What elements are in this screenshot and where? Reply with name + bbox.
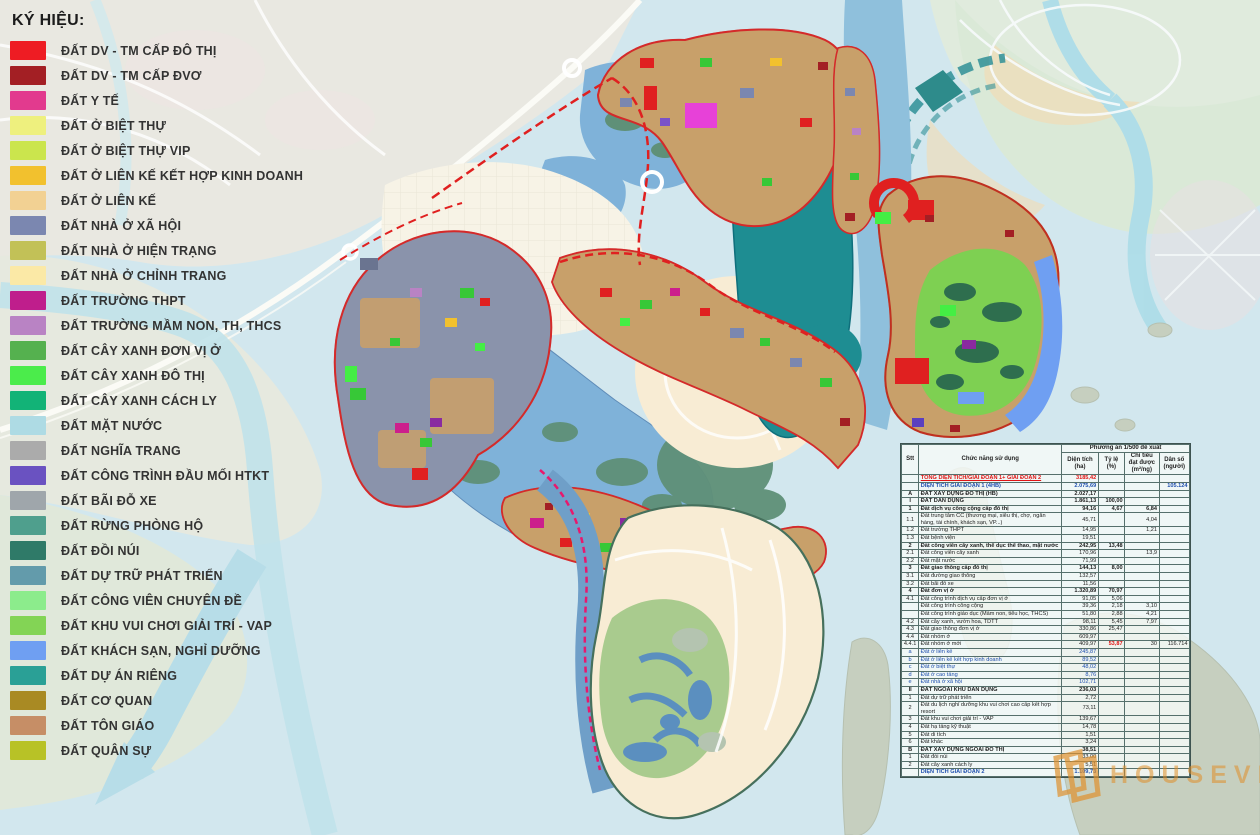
land-use-table: Stt Chức năng sử dụng Phương án 1/500 đề…: [900, 443, 1191, 778]
legend-item: ĐẤT NHÀ Ở CHỈNH TRANG: [10, 263, 303, 288]
table-cell: 91,05: [1062, 595, 1099, 603]
table-cell: 2: [902, 702, 919, 716]
table-row: 1.1Đất trung tâm CC (thương mại, siêu th…: [902, 513, 1190, 527]
table-cell: [1098, 573, 1124, 581]
table-cell: [1125, 702, 1159, 716]
table-cell: Đất bệnh viện: [919, 535, 1062, 543]
table-cell: Đất dịch vụ công cộng cấp đô thị: [919, 505, 1062, 513]
table-cell: [1159, 550, 1189, 558]
legend-item: ĐẤT NHÀ Ở XÃ HỘI: [10, 213, 303, 238]
legend-item: ĐẤT MẶT NƯỚC: [10, 413, 303, 438]
table-cell: 2: [902, 761, 919, 769]
table-cell: [1159, 754, 1189, 762]
table-cell: b: [902, 656, 919, 664]
legend-swatch: [10, 441, 46, 460]
legend-item-label: ĐẤT BÃI ĐỖ XE: [61, 494, 157, 508]
table-cell: [1159, 580, 1189, 588]
table-row: 2.1Đất công viên cây xanh170,9613,9: [902, 550, 1190, 558]
table-cell: [1159, 702, 1189, 716]
legend-item: ĐẤT NHÀ Ở HIỆN TRẠNG: [10, 238, 303, 263]
table-cell: [1159, 611, 1189, 619]
table-cell: [1159, 565, 1189, 573]
table-cell: 170,96: [1062, 550, 1099, 558]
table-cell: [1159, 746, 1189, 754]
table-cell: [1159, 490, 1189, 498]
legend-swatch: [10, 316, 46, 335]
table-cell: [1098, 527, 1124, 535]
table-cell: [1159, 618, 1189, 626]
legend-swatch: [10, 41, 46, 60]
table-cell: 242,95: [1062, 542, 1099, 550]
legend-item: ĐẤT TRƯỜNG THPT: [10, 288, 303, 313]
table-cell: Đất hạ tầng kỹ thuật: [919, 723, 1062, 731]
table-cell: [1125, 694, 1159, 702]
table-cell: Đất giao thông đơn vị ở: [919, 626, 1062, 634]
table-cell: [1159, 513, 1189, 527]
legend-item: ĐẤT Ở BIỆT THỰ: [10, 113, 303, 138]
table-cell: [1159, 595, 1189, 603]
table-row: 1Đất dự trữ phát triển2,72: [902, 694, 1190, 702]
legend-item-label: ĐẤT DỰ ÁN RIÊNG: [61, 669, 177, 683]
legend-item: ĐẤT DỰ ÁN RIÊNG: [10, 663, 303, 688]
table-row: 2Đất du lịch nghỉ dưỡng khu vui chơi cao…: [902, 702, 1190, 716]
table-cell: [1098, 664, 1124, 672]
table-cell: [1098, 580, 1124, 588]
legend-item: ĐẤT Y TẾ: [10, 88, 303, 113]
legend-item: ĐẤT DV - TM CẤP ĐÔ THỊ: [10, 38, 303, 63]
table-cell: 3.1: [902, 573, 919, 581]
table-row: 6Đất khác3,24: [902, 739, 1190, 747]
table-cell: [1098, 482, 1124, 490]
table-row: 2Đất công viên cây xanh, thể dục thể tha…: [902, 542, 1190, 550]
legend-item-label: ĐẤT CÔNG VIÊN CHUYÊN ĐỀ: [61, 594, 242, 608]
table-cell: [1159, 761, 1189, 769]
legend-item: ĐẤT KHÁCH SẠN, NGHỈ DƯỠNG: [10, 638, 303, 663]
table-cell: 4.1: [902, 595, 919, 603]
table-cell: 4.2: [902, 618, 919, 626]
legend-swatch: [10, 66, 46, 85]
table-cell: Đất đồi núi: [919, 754, 1062, 762]
table-cell: [1125, 656, 1159, 664]
table-cell: ĐẤT NGOÀI KHU DÂN DỤNG: [919, 686, 1062, 694]
table-cell: 1.3: [902, 535, 919, 543]
table-cell: [1125, 565, 1159, 573]
table-row: 3Đất giao thông cấp đô thị144,138,00: [902, 565, 1190, 573]
table-cell: [1125, 664, 1159, 672]
legend-item-label: ĐẤT NHÀ Ở XÃ HỘI: [61, 219, 181, 233]
table-cell: [1098, 679, 1124, 687]
table-cell: [1125, 761, 1159, 769]
table-cell: Đất công trình dịch vụ cấp đơn vị ở: [919, 595, 1062, 603]
table-cell: Đất công viên cây xanh: [919, 550, 1062, 558]
legend-swatch: [10, 266, 46, 285]
table-row: bĐất ở liên kế kết hợp kinh doanh89,52: [902, 656, 1190, 664]
table-cell: 2,88: [1098, 611, 1124, 619]
table-cell: [1159, 498, 1189, 506]
table-cell: [1098, 754, 1124, 762]
legend-item-label: ĐẤT CÂY XANH CÁCH LY: [61, 394, 217, 408]
legend-item: ĐẤT TÔN GIÁO: [10, 713, 303, 738]
table-cell: [1098, 490, 1124, 498]
col-header-pop: Dân số (người): [1159, 453, 1189, 475]
table-cell: [902, 482, 919, 490]
legend-item: ĐẤT CƠ QUAN: [10, 688, 303, 713]
legend-item-label: ĐẤT CÂY XANH ĐÔ THỊ: [61, 369, 205, 383]
table-cell: [1098, 656, 1124, 664]
table-cell: 5: [902, 731, 919, 739]
legend-item: ĐẤT RỪNG PHÒNG HỘ: [10, 513, 303, 538]
table-cell: Đất cây xanh cách ly: [919, 761, 1062, 769]
table-cell: [1098, 723, 1124, 731]
planning-map-screen: KÝ HIỆU: ĐẤT DV - TM CẤP ĐÔ THỊĐẤT DV - …: [0, 0, 1260, 835]
legend-swatch: [10, 416, 46, 435]
table-cell: [1159, 603, 1189, 611]
legend-swatch: [10, 166, 46, 185]
table-cell: 4,67: [1098, 505, 1124, 513]
table-cell: [1125, 648, 1159, 656]
table-cell: d: [902, 671, 919, 679]
table-cell: [1098, 694, 1124, 702]
table-cell: 245,87: [1062, 648, 1099, 656]
table-cell: 132,57: [1062, 573, 1099, 581]
table-row: 3Đất khu vui chơi giải trí - VAP139,67: [902, 716, 1190, 724]
legend-swatch: [10, 241, 46, 260]
legend-item-label: ĐẤT TRƯỜNG THPT: [61, 294, 186, 308]
table-cell: Đất trung tâm CC (thương mại, siêu thị, …: [919, 513, 1062, 527]
legend-item: ĐẤT TRƯỜNG MẦM NON, TH, THCS: [10, 313, 303, 338]
table-cell: DIỆN TÍCH GIAI ĐOẠN 2: [919, 769, 1062, 777]
table-cell: [1125, 482, 1159, 490]
table-cell: [1098, 739, 1124, 747]
table-cell: [1159, 626, 1189, 634]
table-cell: [1125, 716, 1159, 724]
table-cell: [1159, 535, 1189, 543]
table-cell: [1159, 648, 1189, 656]
table-cell: 139,67: [1062, 716, 1099, 724]
table-row: 4Đất hạ tầng kỹ thuật14,78: [902, 723, 1190, 731]
table-cell: 2,72: [1062, 694, 1099, 702]
table-cell: Đất bãi đỗ xe: [919, 580, 1062, 588]
table-cell: [1125, 679, 1159, 687]
legend-item-label: ĐẤT KHÁCH SẠN, NGHỈ DƯỠNG: [61, 644, 261, 658]
table-cell: 3185,42: [1062, 475, 1099, 483]
table-cell: 39,36: [1062, 603, 1099, 611]
legend: KÝ HIỆU: ĐẤT DV - TM CẤP ĐÔ THỊĐẤT DV - …: [10, 12, 303, 763]
table-row: IIĐẤT NGOÀI KHU DÂN DỤNG236,03: [902, 686, 1190, 694]
table-cell: 98,11: [1062, 618, 1099, 626]
table-cell: Đất ở liên kế kết hợp kinh doanh: [919, 656, 1062, 664]
table-row: 1.2Đất trường THPT14,951,21: [902, 527, 1190, 535]
legend-list: ĐẤT DV - TM CẤP ĐÔ THỊĐẤT DV - TM CẤP ĐV…: [10, 38, 303, 763]
table-cell: 409,97: [1062, 641, 1099, 649]
table-cell: ĐẤT XÂY DỰNG ĐÔ THỊ (HB): [919, 490, 1062, 498]
table-cell: 4.4: [902, 633, 919, 641]
table-cell: [1159, 716, 1189, 724]
table-cell: 1,21: [1125, 527, 1159, 535]
table-cell: [1125, 535, 1159, 543]
table-cell: Đất dự trữ phát triển: [919, 694, 1062, 702]
table-cell: [1098, 702, 1124, 716]
table-cell: 105.124: [1159, 482, 1189, 490]
legend-item-label: ĐẤT CÂY XANH ĐƠN VỊ Ở: [61, 344, 221, 358]
table-cell: [1159, 679, 1189, 687]
table-cell: [1098, 746, 1124, 754]
legend-item-label: ĐẤT Ở BIỆT THỰ: [61, 119, 166, 133]
table-cell: Đất khu vui chơi giải trí - VAP: [919, 716, 1062, 724]
legend-swatch: [10, 641, 46, 660]
table-cell: 236,03: [1062, 686, 1099, 694]
table-cell: DIỆN TÍCH GIAI ĐOẠN 1 (4HB): [919, 482, 1062, 490]
table-cell: [1159, 739, 1189, 747]
table-cell: 6,84: [1125, 505, 1159, 513]
table-cell: 2.075,69: [1062, 482, 1099, 490]
table-row: 1.3Đất bệnh viện19,51: [902, 535, 1190, 543]
legend-item: ĐẤT DỰ TRỮ PHÁT TRIỂN: [10, 563, 303, 588]
table-cell: 3,10: [1125, 603, 1159, 611]
legend-swatch: [10, 116, 46, 135]
table-cell: [902, 603, 919, 611]
table-cell: 1: [902, 694, 919, 702]
table-cell: [1125, 769, 1159, 777]
table-cell: [1125, 754, 1159, 762]
table-cell: 4: [902, 723, 919, 731]
table-cell: [1159, 731, 1189, 739]
table-row: 2.2Đất mặt nước71,99: [902, 557, 1190, 565]
table-cell: [1159, 723, 1189, 731]
table-row: Đất công trình công cộng39,362,183,10: [902, 603, 1190, 611]
col-header-stt: Stt: [902, 445, 919, 475]
table-cell: [1125, 633, 1159, 641]
table-row: 4.1Đất công trình dịch vụ cấp đơn vị ở91…: [902, 595, 1190, 603]
table-cell: [1098, 716, 1124, 724]
table-cell: [1125, 580, 1159, 588]
table-cell: 3,24: [1062, 739, 1099, 747]
table-cell: [1098, 671, 1124, 679]
legend-item-label: ĐẤT NHÀ Ở CHỈNH TRANG: [61, 269, 227, 283]
col-header-function: Chức năng sử dụng: [919, 445, 1062, 475]
table-row: 1Đất dịch vụ công cộng cấp đô thị94,164,…: [902, 505, 1190, 513]
table-cell: 8,00: [1098, 565, 1124, 573]
legend-item: ĐẤT NGHĨA TRANG: [10, 438, 303, 463]
table-cell: [1125, 542, 1159, 550]
legend-item-label: ĐẤT CƠ QUAN: [61, 694, 152, 708]
table-cell: 7,97: [1125, 618, 1159, 626]
table-cell: Đất khác: [919, 739, 1062, 747]
table-cell: 48,02: [1062, 664, 1099, 672]
legend-title: KÝ HIỆU:: [12, 12, 303, 30]
legend-item: ĐẤT KHU VUI CHƠI GIẢI TRÍ - VAP: [10, 613, 303, 638]
table-cell: 4.4.1: [902, 641, 919, 649]
table-cell: 3: [902, 565, 919, 573]
table-cell: [1125, 490, 1159, 498]
col-header-area: Diện tích (ha): [1062, 453, 1099, 475]
table-cell: 2,18: [1098, 603, 1124, 611]
legend-item-label: ĐẤT DỰ TRỮ PHÁT TRIỂN: [61, 569, 223, 583]
table-cell: Đất giao thông cấp đô thị: [919, 565, 1062, 573]
table-cell: a: [902, 648, 919, 656]
table-cell: 33,00: [1062, 754, 1099, 762]
table-cell: [1098, 731, 1124, 739]
col-header-plan: Phương án 1/500 đề xuất: [1062, 445, 1190, 453]
table-cell: Đất nhóm ở: [919, 633, 1062, 641]
table-cell: 1.861,13: [1062, 498, 1099, 506]
legend-item: ĐẤT DV - TM CẤP ĐVƠ: [10, 63, 303, 88]
legend-item: ĐẤT CÂY XANH ĐƠN VỊ Ở: [10, 338, 303, 363]
table-cell: II: [902, 686, 919, 694]
table-cell: [1159, 588, 1189, 596]
table-cell: [1098, 557, 1124, 565]
table-cell: 19,51: [1062, 535, 1099, 543]
table-cell: [1125, 671, 1159, 679]
table-cell: 11,56: [1062, 580, 1099, 588]
table-cell: [1159, 694, 1189, 702]
table-cell: 8,76: [1062, 671, 1099, 679]
legend-item-label: ĐẤT NGHĨA TRANG: [61, 444, 181, 458]
col-header-ratio: Tỷ lệ (%): [1098, 453, 1124, 475]
table-cell: [1125, 626, 1159, 634]
table-row: DIỆN TÍCH GIAI ĐOẠN 21.109,73: [902, 769, 1190, 777]
table-row: eĐất nhà ở xã hội102,71: [902, 679, 1190, 687]
legend-swatch: [10, 591, 46, 610]
legend-item-label: ĐẤT Ở LIÊN KẾ: [61, 194, 156, 208]
table-cell: 51,80: [1062, 611, 1099, 619]
table-cell: Đất nhóm ở mới: [919, 641, 1062, 649]
table-cell: 2: [902, 542, 919, 550]
table-cell: 30: [1125, 641, 1159, 649]
legend-swatch: [10, 491, 46, 510]
table-cell: 3: [902, 716, 919, 724]
table-cell: [1098, 550, 1124, 558]
table-cell: 14,95: [1062, 527, 1099, 535]
table-row: aĐất ở liên kế245,87: [902, 648, 1190, 656]
legend-item-label: ĐẤT DV - TM CẤP ĐVƠ: [61, 69, 202, 83]
table-cell: 6: [902, 739, 919, 747]
table-cell: [1098, 475, 1124, 483]
legend-item-label: ĐẤT Ở BIỆT THỰ VIP: [61, 144, 191, 158]
table-cell: [1125, 573, 1159, 581]
table-cell: 13,9: [1125, 550, 1159, 558]
table-cell: 25,47: [1098, 626, 1124, 634]
legend-item-label: ĐẤT KHU VUI CHƠI GIẢI TRÍ - VAP: [61, 619, 272, 633]
table-cell: [1159, 505, 1189, 513]
table-row: BĐẤT XÂY DỰNG NGOÀI ĐÔ THỊ38,51: [902, 746, 1190, 754]
table-row: dĐất ở cao tầng8,76: [902, 671, 1190, 679]
table-row: cĐất ở biệt thự48,02: [902, 664, 1190, 672]
legend-swatch: [10, 566, 46, 585]
table-cell: [1098, 648, 1124, 656]
table-cell: 144,13: [1062, 565, 1099, 573]
col-header-target: Chỉ tiêu đạt được (m²/ng): [1125, 453, 1159, 475]
table-row: IĐẤT DÂN DỤNG1.861,13100,00: [902, 498, 1190, 506]
table-cell: 14,78: [1062, 723, 1099, 731]
table-row: DIỆN TÍCH GIAI ĐOẠN 1 (4HB)2.075,69105.1…: [902, 482, 1190, 490]
legend-swatch: [10, 616, 46, 635]
table-cell: [902, 475, 919, 483]
legend-swatch: [10, 291, 46, 310]
table-body: TỔNG DIỆN TÍCH/GIAI ĐOẠN 1+ GIAI ĐOẠN 23…: [902, 475, 1190, 777]
table-cell: Đất đường giao thông: [919, 573, 1062, 581]
table-cell: [1098, 513, 1124, 527]
legend-item: ĐẤT BÃI ĐỖ XE: [10, 488, 303, 513]
legend-swatch: [10, 716, 46, 735]
table-cell: 4,04: [1125, 513, 1159, 527]
table-cell: 71,99: [1062, 557, 1099, 565]
table-cell: 1,51: [1062, 731, 1099, 739]
legend-swatch: [10, 391, 46, 410]
table-row: 3.2Đất bãi đỗ xe11,56: [902, 580, 1190, 588]
table-cell: Đất trường THPT: [919, 527, 1062, 535]
table-cell: [1159, 664, 1189, 672]
table-cell: [902, 611, 919, 619]
table-cell: 2.2: [902, 557, 919, 565]
table-cell: [1159, 633, 1189, 641]
table-cell: 5,06: [1098, 595, 1124, 603]
table-cell: 100,00: [1098, 498, 1124, 506]
table-cell: A: [902, 490, 919, 498]
legend-item: ĐẤT Ở LIÊN KẾ KẾT HỢP KINH DOANH: [10, 163, 303, 188]
legend-swatch: [10, 341, 46, 360]
table-cell: Đất ở cao tầng: [919, 671, 1062, 679]
legend-item-label: ĐẤT RỪNG PHÒNG HỘ: [61, 519, 203, 533]
table-cell: [1098, 686, 1124, 694]
legend-item: ĐẤT CÔNG TRÌNH ĐẦU MỐI HTKT: [10, 463, 303, 488]
table-cell: 1.2: [902, 527, 919, 535]
table-cell: 609,97: [1062, 633, 1099, 641]
table-cell: [1125, 686, 1159, 694]
legend-item: ĐẤT QUÂN SỰ: [10, 738, 303, 763]
legend-item: ĐẤT Ở LIÊN KẾ: [10, 188, 303, 213]
table-cell: 94,16: [1062, 505, 1099, 513]
legend-item-label: ĐẤT QUÂN SỰ: [61, 744, 151, 758]
table-cell: ĐẤT DÂN DỤNG: [919, 498, 1062, 506]
legend-swatch: [10, 191, 46, 210]
legend-item-label: ĐẤT ĐỒI NÚI: [61, 544, 140, 558]
table-cell: [1098, 535, 1124, 543]
table-cell: 116.714: [1159, 641, 1189, 649]
table-cell: [1159, 573, 1189, 581]
table-row: 4.2Đất cây xanh, vườn hoa, TDTT98,115,45…: [902, 618, 1190, 626]
table-row: 4Đất đơn vị ở1.320,8970,97: [902, 588, 1190, 596]
legend-item-label: ĐẤT MẶT NƯỚC: [61, 419, 162, 433]
table-cell: [1098, 633, 1124, 641]
table-cell: Đất du lịch nghỉ dưỡng khu vui chơi cao …: [919, 702, 1062, 716]
table-cell: 89,52: [1062, 656, 1099, 664]
table-cell: [1159, 671, 1189, 679]
table-row: 4.4Đất nhóm ở609,97: [902, 633, 1190, 641]
table-row: 3.1Đất đường giao thông132,57: [902, 573, 1190, 581]
table-cell: [1159, 769, 1189, 777]
table-cell: [1125, 723, 1159, 731]
table-cell: 1.109,73: [1062, 769, 1099, 777]
table-cell: Đất cây xanh, vườn hoa, TDTT: [919, 618, 1062, 626]
table-cell: 5,51: [1062, 761, 1099, 769]
table-cell: Đất đơn vị ở: [919, 588, 1062, 596]
table-cell: [1125, 475, 1159, 483]
table-cell: TỔNG DIỆN TÍCH/GIAI ĐOẠN 1+ GIAI ĐOẠN 2: [919, 475, 1062, 483]
table-cell: Đất mặt nước: [919, 557, 1062, 565]
legend-item: ĐẤT CÔNG VIÊN CHUYÊN ĐỀ: [10, 588, 303, 613]
table-cell: Đất nhà ở xã hội: [919, 679, 1062, 687]
table-row: 4.4.1Đất nhóm ở mới409,9753,8730116.714: [902, 641, 1190, 649]
table-cell: [1125, 746, 1159, 754]
table-cell: 45,71: [1062, 513, 1099, 527]
table-row: 5Đất di tích1,51: [902, 731, 1190, 739]
legend-item: ĐẤT CÂY XANH CÁCH LY: [10, 388, 303, 413]
legend-item: ĐẤT Ở BIỆT THỰ VIP: [10, 138, 303, 163]
table-cell: Đất công trình giáo dục (Mầm non, tiểu h…: [919, 611, 1062, 619]
legend-swatch: [10, 141, 46, 160]
table-cell: 4,21: [1125, 611, 1159, 619]
